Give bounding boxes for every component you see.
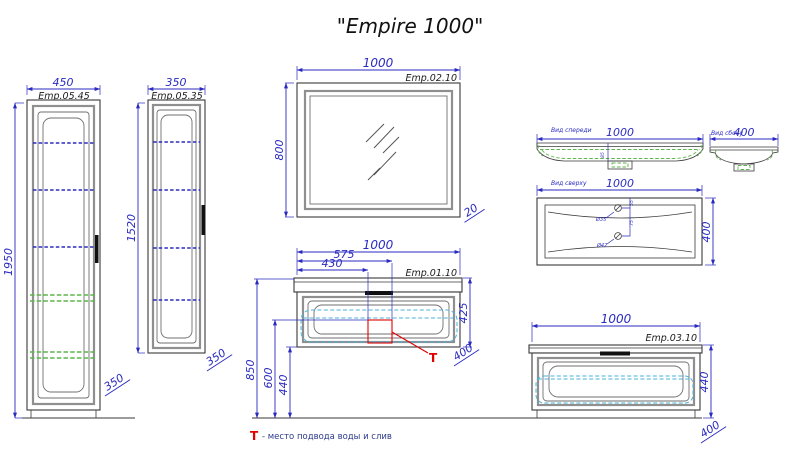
legend: T - место подвода воды и слив (250, 429, 392, 443)
vanity-430-dim: 430 (322, 257, 343, 270)
washbasin-side-view: Вид сбоку 400 (710, 126, 778, 171)
cab450-door-handle (95, 235, 99, 263)
faucet-hole-label: Ø35 (595, 216, 606, 223)
vanity-850-dim: 850 (244, 360, 257, 381)
legend-t-marker: T (250, 429, 259, 443)
washbasin-front-view: Вид спереди 1000 85 (537, 126, 703, 169)
basecab-drawer-handle (600, 352, 630, 356)
vanity-drawing: 1000 575 430 Emp.01.10 T 425 400 850 60 (244, 238, 479, 418)
basin-top-depth-dim: 400 (700, 222, 713, 243)
cab450-width-dim: 450 (53, 76, 74, 89)
basecab-height-dim: 440 (698, 372, 711, 393)
basecab-width-dim: 1000 (601, 312, 632, 326)
vanity-drawer-handle (365, 291, 393, 295)
basin-top-width-dim: 1000 (606, 177, 634, 190)
mirror-code: Emp.02.10 (405, 73, 457, 84)
mirror-width-dim: 1000 (363, 56, 394, 70)
washbasin-top-view: Вид сверху 1000 Ø35 Ø42 55 75 400 (537, 177, 716, 265)
vanity-600-dim: 600 (262, 368, 275, 389)
basin-height-dim: 85 (600, 152, 606, 158)
top-view-label: Вид сверху (551, 180, 587, 187)
drain-hole-label: Ø42 (596, 242, 607, 249)
mirror-height-dim: 800 (273, 140, 286, 161)
base-cabinet-drawing: 1000 Emp.03.10 440 400 (529, 312, 726, 443)
basecab-depth-label: 400 (694, 416, 726, 443)
cab350-height-dim: 1520 (125, 214, 138, 242)
cab350-door-handle (202, 205, 206, 235)
faucet-offset-dim: 55 (629, 200, 635, 206)
tall-cabinet-450-drawing: 450 Emp.05.45 1950 350 (2, 76, 135, 418)
drawing-canvas: "Empire 1000" 450 Emp.05.45 1950 350 350 (0, 0, 800, 473)
vanity-code: Emp.01.10 (405, 268, 457, 279)
front-view-label: Вид спереди (551, 127, 592, 134)
basin-side-depth-dim: 400 (734, 126, 755, 139)
vanity-t-marker: T (429, 351, 438, 365)
cab350-width-dim: 350 (166, 76, 187, 89)
mirror-depth-label: 20 (457, 198, 484, 222)
svg-text:20: 20 (462, 201, 481, 220)
holes-distance-dim: 75 (629, 220, 635, 226)
basecab-code: Emp.03.10 (645, 333, 697, 344)
mirror-drawing: 1000 Emp.02.10 800 20 (273, 56, 485, 222)
cab450-height-dim: 1950 (2, 248, 15, 276)
cab450-depth-label: 350 (98, 369, 130, 396)
tall-cabinet-350-drawing: 350 Emp.05.35 1520 350 (125, 76, 232, 371)
vanity-440-dim: 440 (277, 375, 290, 396)
vanity-front-height-dim: 425 (457, 303, 470, 324)
basin-front-width-dim: 1000 (606, 126, 634, 139)
legend-text: - место подвода воды и слив (262, 432, 392, 442)
vanity-width-dim: 1000 (363, 238, 394, 252)
drawing-title: "Empire 1000" (337, 14, 484, 38)
technical-drawing: "Empire 1000" 450 Emp.05.45 1950 350 350 (0, 0, 800, 473)
